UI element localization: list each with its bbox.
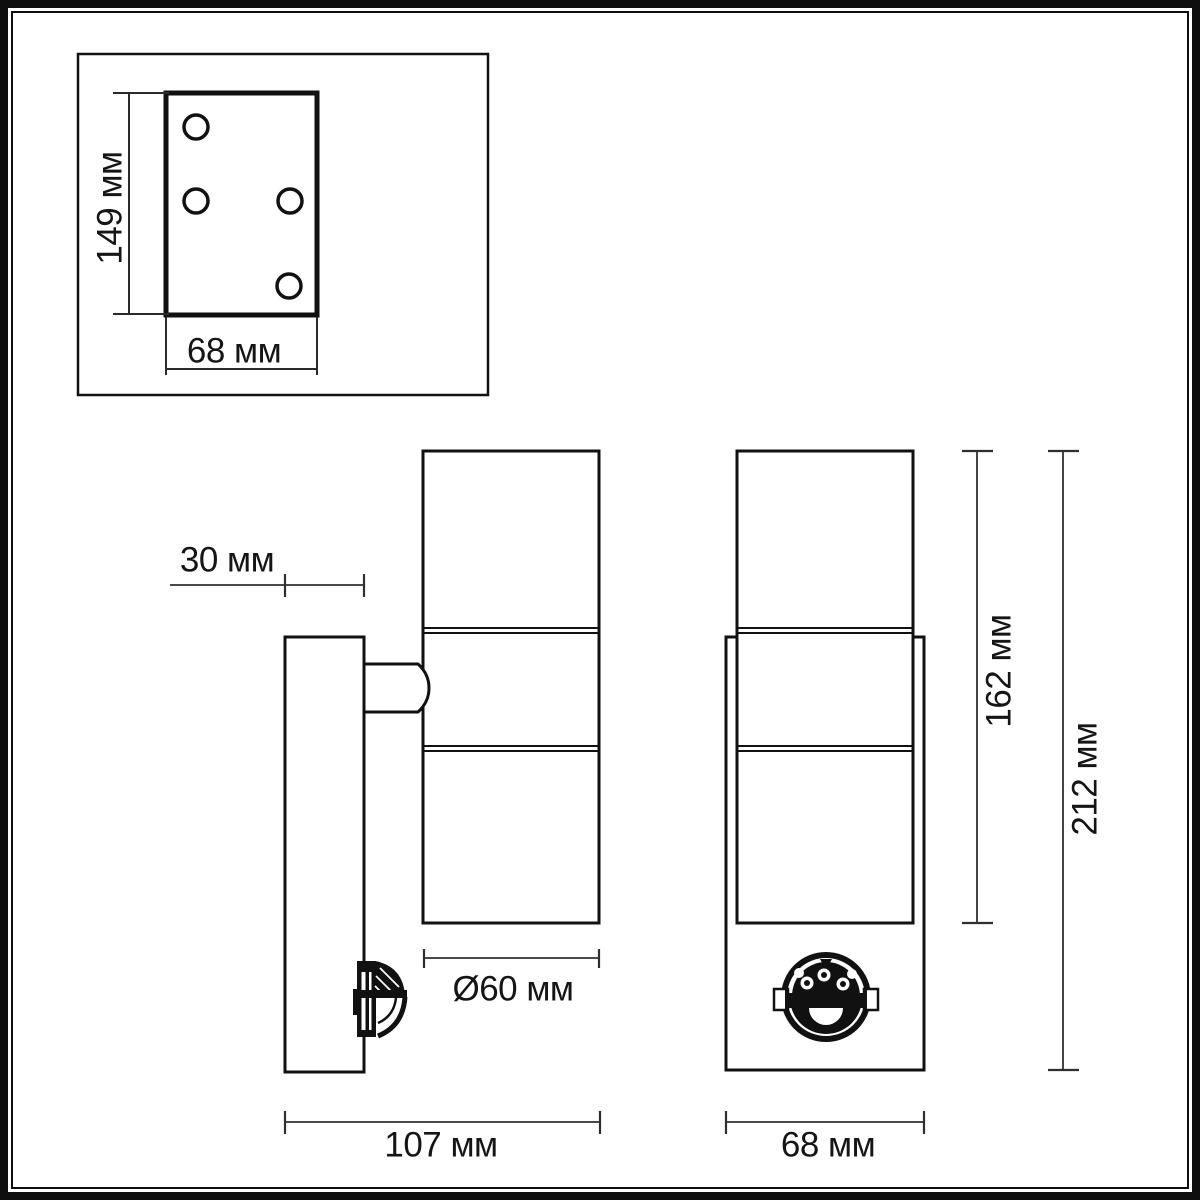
sensor-front-screw-dot xyxy=(840,981,846,987)
mounting-plate-outline xyxy=(166,93,317,315)
dim-diameter-lines xyxy=(424,949,599,968)
side-lamp-body xyxy=(423,451,599,923)
sensor-front-scallop xyxy=(794,968,804,978)
dim-label-body-diameter: Ø60 мм xyxy=(452,972,573,1007)
sensor-side-fan-lower xyxy=(378,997,405,1036)
side-backplate xyxy=(285,637,364,1072)
sensor-front-scallop xyxy=(847,969,857,979)
sensor-side-ledge xyxy=(357,990,407,998)
front-lamp-body xyxy=(737,451,913,923)
sensor-side-slit xyxy=(362,972,366,1030)
dim-label-total-height: 212 мм xyxy=(1068,722,1103,835)
sensor-side-fan-inner xyxy=(378,998,396,1023)
technical-drawing-canvas: 149 мм 68 мм 30 мм Ø60 мм 107 мм 68 мм 1… xyxy=(0,0,1200,1200)
mounting-plate-view xyxy=(78,54,488,395)
dim-label-wall-offset: 30 мм xyxy=(180,543,274,578)
dim-label-plate-height: 149 мм xyxy=(93,151,128,264)
motion-sensor-side-view xyxy=(353,961,407,1037)
sensor-side-slit xyxy=(369,972,372,1030)
sensor-side-strip xyxy=(357,961,376,1037)
dim-label-body-height: 162 мм xyxy=(982,614,1017,727)
sensor-front-screw-dot xyxy=(804,980,810,986)
lamp-dimension-drawing xyxy=(0,0,1200,1200)
sensor-front-band xyxy=(780,993,872,1008)
side-mounting-arm xyxy=(364,664,429,712)
dim-label-side-total-width: 107 мм xyxy=(384,1128,497,1163)
dim-label-plate-width: 68 мм xyxy=(187,334,281,369)
sensor-front-screw-dot xyxy=(821,972,827,978)
dim-label-front-width: 68 мм xyxy=(781,1128,875,1163)
front-view xyxy=(726,451,1079,1134)
